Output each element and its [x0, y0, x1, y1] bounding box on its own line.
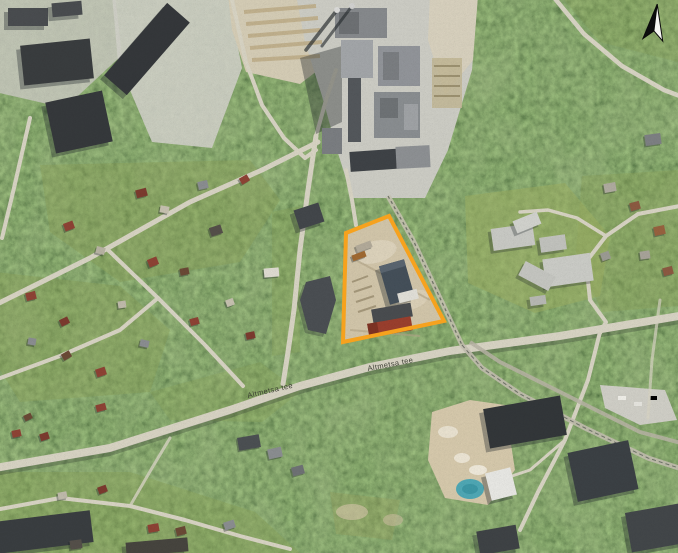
aerial-photo: Altmetsa tee Altmetsa tee: [0, 0, 678, 553]
aerial-map: Altmetsa tee Altmetsa tee: [0, 0, 678, 553]
photo-grain: [0, 0, 678, 553]
